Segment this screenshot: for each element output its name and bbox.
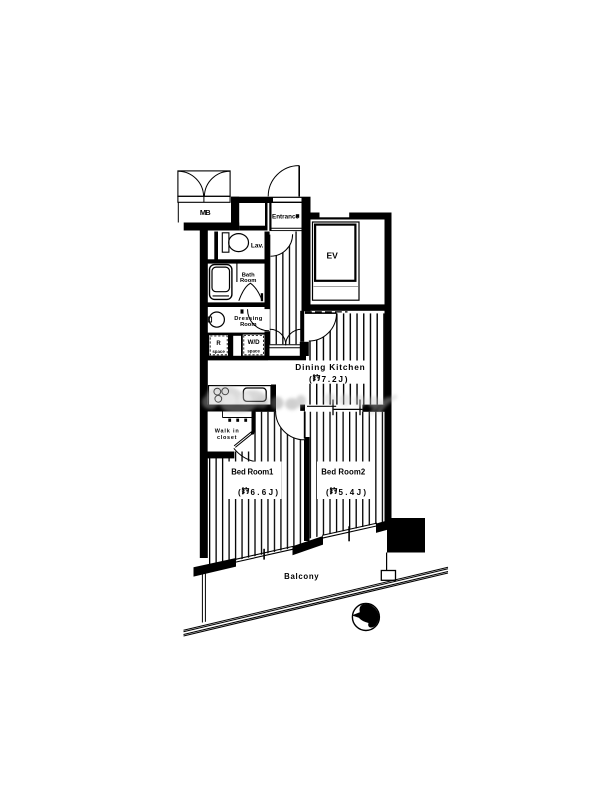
svg-text:space: space — [247, 349, 260, 354]
svg-text:R: R — [216, 341, 221, 347]
svg-text:closet: closet — [217, 435, 237, 441]
svg-text:(: ( — [309, 374, 312, 384]
svg-text:Lav.: Lav. — [251, 243, 264, 250]
svg-text:Walk in: Walk in — [215, 429, 240, 435]
svg-text:MB: MB — [200, 208, 211, 217]
svg-text:W/D: W/D — [248, 339, 261, 346]
svg-text:Entrance: Entrance — [272, 213, 299, 220]
svg-text:EV: EV — [327, 251, 339, 261]
svg-text:(: ( — [326, 488, 329, 497]
svg-text:Room: Room — [240, 278, 256, 284]
svg-text:space: space — [212, 349, 225, 354]
svg-text:Bed Room1: Bed Room1 — [231, 467, 274, 476]
svg-text:Dining Kitchen: Dining Kitchen — [295, 362, 365, 372]
svg-text:(: ( — [238, 488, 241, 497]
svg-text:Bed Room2: Bed Room2 — [321, 467, 366, 476]
svg-text:7.2J): 7.2J) — [322, 374, 348, 384]
svg-text:Balcony: Balcony — [284, 572, 319, 581]
svg-text:Room: Room — [240, 322, 256, 328]
